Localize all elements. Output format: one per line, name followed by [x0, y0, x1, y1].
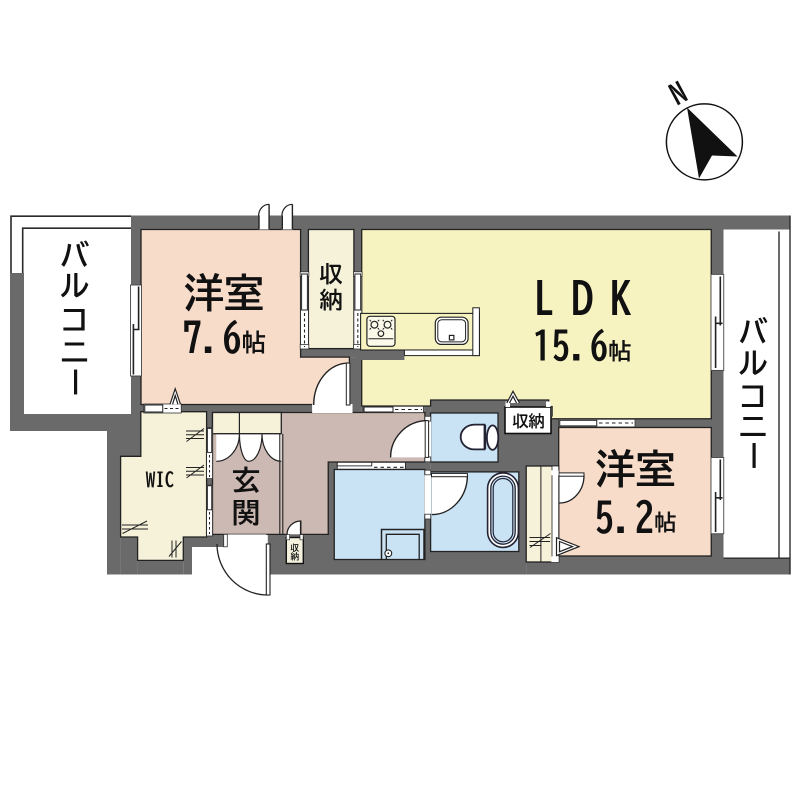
svg-text:関: 関 — [232, 499, 260, 527]
svg-text:N: N — [666, 78, 691, 108]
svg-text:洋室: 洋室 — [184, 272, 264, 312]
svg-text:バ: バ — [739, 318, 768, 347]
svg-text:収: 収 — [320, 263, 343, 286]
svg-text:ル: ル — [60, 272, 89, 301]
svg-text:収納: 収納 — [513, 413, 545, 429]
svg-text:ー: ー — [739, 441, 768, 470]
svg-text:LDK: LDK — [533, 277, 649, 320]
svg-text:納: 納 — [290, 552, 299, 562]
svg-text:納: 納 — [320, 289, 343, 312]
svg-text:ニ: ニ — [60, 338, 89, 367]
svg-text:ー: ー — [60, 368, 89, 397]
svg-text:収: 収 — [290, 543, 299, 553]
svg-text:コ: コ — [60, 306, 89, 335]
svg-text:WIC: WIC — [146, 471, 175, 490]
svg-text:洋室: 洋室 — [596, 449, 676, 489]
svg-text:バ: バ — [60, 241, 89, 270]
svg-text:ニ: ニ — [739, 412, 768, 441]
svg-text:コ: コ — [739, 382, 768, 411]
svg-text:ル: ル — [739, 349, 768, 378]
svg-text:玄: 玄 — [232, 467, 260, 495]
